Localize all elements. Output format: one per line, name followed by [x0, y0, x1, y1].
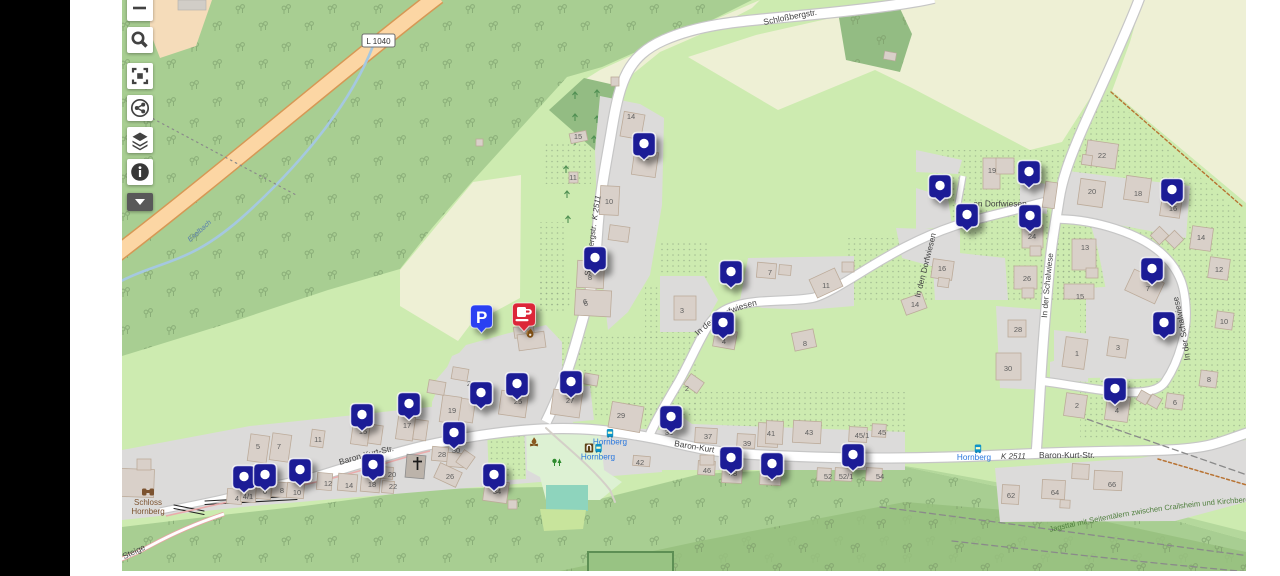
- svg-text:16: 16: [938, 264, 946, 273]
- svg-text:Hornberg: Hornberg: [581, 453, 616, 462]
- svg-text:8: 8: [280, 486, 284, 495]
- svg-text:39: 39: [743, 439, 751, 448]
- svg-text:P: P: [476, 308, 487, 327]
- svg-text:15: 15: [574, 132, 582, 141]
- svg-text:8: 8: [588, 273, 592, 282]
- svg-text:37: 37: [704, 432, 712, 441]
- svg-text:52: 52: [824, 472, 832, 481]
- svg-text:64: 64: [1051, 488, 1059, 497]
- svg-text:43: 43: [805, 428, 813, 437]
- svg-text:46: 46: [703, 466, 711, 475]
- svg-text:L 1040: L 1040: [366, 37, 391, 46]
- svg-text:26: 26: [446, 472, 454, 481]
- svg-text:Baron-Kurt-Str.: Baron-Kurt-Str.: [1039, 450, 1095, 460]
- svg-text:19: 19: [988, 166, 996, 175]
- svg-text:10: 10: [1220, 317, 1228, 326]
- svg-text:8: 8: [803, 339, 807, 348]
- svg-text:28: 28: [1014, 325, 1022, 334]
- svg-text:10: 10: [293, 488, 301, 497]
- svg-text:15: 15: [1076, 292, 1084, 301]
- svg-text:14: 14: [911, 300, 919, 309]
- svg-text:22: 22: [389, 482, 397, 491]
- svg-text:6: 6: [1173, 398, 1177, 407]
- svg-text:2: 2: [685, 384, 689, 393]
- svg-text:3: 3: [1116, 343, 1120, 352]
- svg-text:Schloss: Schloss: [134, 498, 162, 507]
- svg-text:11: 11: [569, 173, 577, 182]
- svg-text:54: 54: [876, 472, 884, 481]
- svg-text:6: 6: [583, 297, 587, 306]
- svg-text:20: 20: [388, 470, 396, 479]
- svg-text:13: 13: [1081, 243, 1089, 252]
- svg-text:29: 29: [617, 411, 625, 420]
- svg-text:2: 2: [1075, 401, 1079, 410]
- svg-text:62: 62: [1007, 491, 1015, 500]
- svg-text:12: 12: [1215, 265, 1223, 274]
- svg-text:45: 45: [878, 428, 886, 437]
- svg-text:41: 41: [767, 429, 775, 438]
- svg-text:K 2511: K 2511: [1001, 452, 1026, 461]
- svg-text:5: 5: [256, 442, 260, 451]
- svg-text:66: 66: [1108, 480, 1116, 489]
- svg-text:Hornberg: Hornberg: [131, 507, 164, 516]
- svg-text:18: 18: [1134, 189, 1142, 198]
- svg-text:20: 20: [1088, 187, 1096, 196]
- svg-text:14: 14: [1197, 233, 1205, 242]
- svg-text:7: 7: [1146, 284, 1150, 293]
- svg-text:4: 4: [235, 494, 239, 503]
- svg-text:14: 14: [627, 112, 635, 121]
- svg-text:24: 24: [1028, 232, 1036, 241]
- svg-text:4: 4: [1115, 406, 1119, 415]
- svg-text:7: 7: [277, 442, 281, 451]
- svg-text:17: 17: [403, 421, 411, 430]
- svg-text:3: 3: [680, 306, 684, 315]
- svg-text:12: 12: [324, 479, 332, 488]
- svg-text:10: 10: [605, 197, 613, 206]
- svg-text:Hornberg: Hornberg: [957, 453, 992, 462]
- svg-text:11: 11: [314, 435, 322, 444]
- svg-text:11: 11: [822, 281, 830, 290]
- svg-text:52/1: 52/1: [839, 472, 854, 481]
- svg-text:42: 42: [636, 458, 644, 467]
- svg-text:1: 1: [1075, 349, 1079, 358]
- svg-text:8: 8: [1207, 375, 1211, 384]
- svg-text:26: 26: [1023, 274, 1031, 283]
- svg-text:28: 28: [438, 450, 446, 459]
- svg-text:14: 14: [345, 481, 353, 490]
- svg-text:30: 30: [1004, 364, 1012, 373]
- svg-text:7: 7: [768, 268, 772, 277]
- svg-text:19: 19: [448, 406, 456, 415]
- svg-text:22: 22: [1098, 151, 1106, 160]
- svg-text:45/1: 45/1: [855, 431, 870, 440]
